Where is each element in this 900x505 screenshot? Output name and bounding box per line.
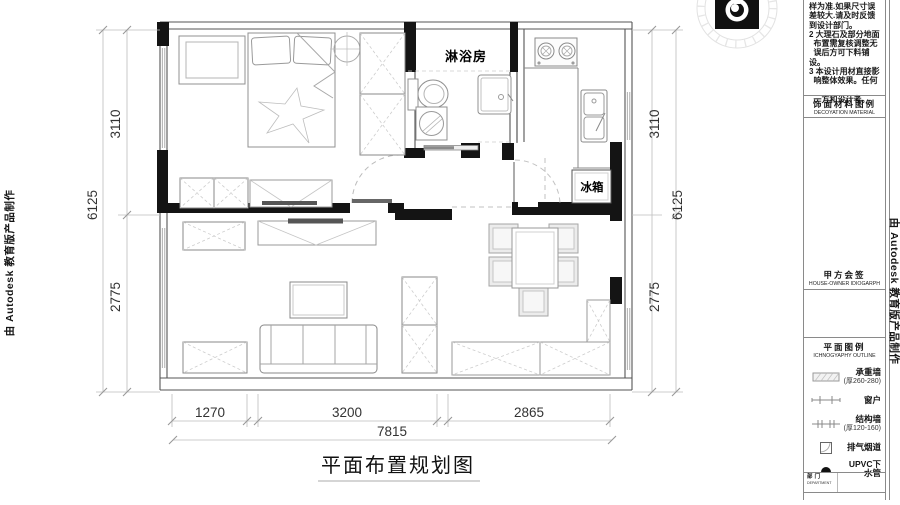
dining-furniture bbox=[452, 224, 610, 375]
plan-legend-section: 平面图例 ICHNOGYAPHY OUTLINE 承重墙(厚260-280) 窗… bbox=[804, 337, 885, 472]
floor-plan-svg: 3110 2775 6125 3110 2775 6125 1270 3200 … bbox=[0, 0, 795, 500]
dim-bottom-seg2: 3200 bbox=[332, 405, 362, 420]
titleblock-footer-row: 部门 DEPARTMENT bbox=[804, 472, 885, 492]
dim-left-top: 3110 bbox=[108, 109, 123, 138]
design-notes: 样为准.如果尺寸误 差较大.请及时反馈 到设计部门。 2 大理石及部分地面 布置… bbox=[804, 0, 885, 95]
owner-sign-title-zh: 甲方会签 bbox=[804, 269, 885, 281]
titleblock-footer-row2 bbox=[804, 492, 885, 500]
department-cell: 部门 DEPARTMENT bbox=[804, 473, 838, 492]
autodesk-watermark-left: 由 Autodesk 教育版产品制作 bbox=[2, 133, 16, 393]
plan-title-group: 平面布置规划图 bbox=[318, 454, 480, 481]
dim-left-total: 6125 bbox=[85, 190, 100, 220]
bearing-wall-icon bbox=[810, 371, 842, 383]
bedroom-furniture bbox=[179, 32, 405, 208]
autodesk-watermark-right: 由 Autodesk 教育版产品制作 bbox=[888, 161, 900, 421]
owner-sign-title-en: HOUSE-OWNER IDIOGARPH bbox=[806, 281, 883, 287]
fridge-label: 冰箱 bbox=[581, 180, 604, 194]
empty-cell bbox=[804, 289, 885, 337]
empty-cell bbox=[838, 473, 885, 492]
material-legend-title-zh: 饰面材料图例 bbox=[804, 98, 885, 110]
plan-title: 平面布置规划图 bbox=[321, 454, 475, 477]
window-icon bbox=[810, 394, 842, 406]
shower-room-label: 淋浴房 bbox=[445, 49, 487, 64]
compass-rose-icon bbox=[697, 0, 777, 48]
exhaust-flue-icon bbox=[810, 441, 842, 455]
dim-right-total: 6125 bbox=[670, 190, 685, 220]
legend-item-window: 窗户 bbox=[804, 391, 885, 409]
material-legend-header: 饰面材料图例 DECOYATION MATERIAL bbox=[804, 95, 885, 117]
material-legend-title-en: DECOYATION MATERIAL bbox=[806, 110, 883, 116]
structure-wall-icon bbox=[810, 418, 842, 430]
legend-item-bearing-wall: 承重墙(厚260-280) bbox=[804, 364, 885, 389]
legend-item-exhaust-flue: 排气烟道 bbox=[804, 438, 885, 457]
owner-sign-section: 甲方会签 HOUSE-OWNER IDIOGARPH bbox=[804, 117, 885, 289]
dim-right-top: 3110 bbox=[647, 109, 662, 138]
dim-bottom-total: 7815 bbox=[377, 424, 407, 439]
dim-left-bottom: 2775 bbox=[108, 282, 123, 312]
kitchen-fixtures bbox=[524, 38, 611, 203]
title-block-sidebar: 样为准.如果尺寸误 差较大.请及时反馈 到设计部门。 2 大理石及部分地面 布置… bbox=[803, 0, 886, 500]
living-room-furniture bbox=[183, 219, 437, 374]
plan-legend-title-en: ICHNOGYAPHY OUTLINE bbox=[806, 353, 883, 359]
dim-right-bottom: 2775 bbox=[647, 282, 662, 312]
drawing-sheet: 3110 2775 6125 3110 2775 6125 1270 3200 … bbox=[0, 0, 900, 500]
legend-item-structure-wall: 结构墙(厚120-160) bbox=[804, 411, 885, 436]
bathroom-fixtures bbox=[408, 71, 513, 142]
plan-legend-title-zh: 平面图例 bbox=[804, 341, 885, 353]
dim-bottom-seg3: 2865 bbox=[514, 405, 544, 420]
dim-bottom-seg1: 1270 bbox=[195, 405, 225, 420]
